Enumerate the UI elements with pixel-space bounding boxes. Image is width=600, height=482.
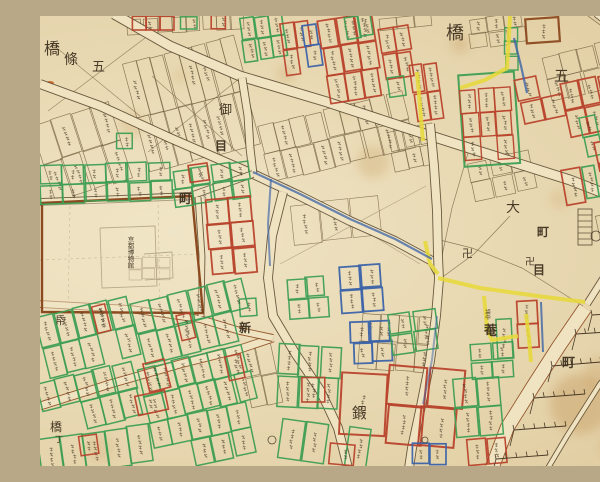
parcel-text-marks bbox=[432, 95, 439, 115]
parcel-text-marks bbox=[240, 435, 247, 450]
parcel-text-marks bbox=[137, 435, 143, 455]
parcel-text-marks bbox=[436, 450, 439, 459]
district-label: 帋 bbox=[55, 314, 66, 327]
survey-tick bbox=[526, 452, 527, 457]
district-label: 鍜 bbox=[352, 404, 367, 422]
parcel-text-marks bbox=[512, 16, 517, 26]
parcel-text-marks bbox=[529, 104, 536, 119]
parcel-block bbox=[239, 16, 288, 62]
district-label: 丁 bbox=[55, 435, 63, 444]
parcel bbox=[51, 113, 83, 157]
parcel-text-marks bbox=[259, 20, 265, 35]
parcel bbox=[459, 90, 476, 114]
parcel-block bbox=[317, 16, 384, 104]
parcel-text-marks bbox=[467, 94, 472, 109]
parcel-text-marks bbox=[115, 168, 119, 177]
parcel bbox=[223, 278, 248, 312]
parcel bbox=[358, 341, 378, 370]
parcel-block bbox=[525, 17, 560, 43]
parcel bbox=[289, 115, 311, 147]
parcel-text-marks bbox=[352, 76, 359, 96]
district-label: 五 bbox=[554, 67, 569, 85]
walled-block bbox=[42, 196, 203, 313]
parcel-text-marks bbox=[419, 450, 423, 459]
parcel bbox=[492, 174, 516, 197]
parcel-text-marks bbox=[93, 169, 97, 178]
parcel-text-marks bbox=[217, 230, 222, 245]
parcel-text-marks bbox=[69, 347, 78, 367]
parcel-text-marks bbox=[74, 164, 84, 184]
parcel bbox=[289, 299, 310, 319]
parcel bbox=[477, 377, 501, 407]
parcel-text-marks bbox=[428, 67, 435, 87]
parcel-text-marks bbox=[312, 50, 317, 60]
parcel bbox=[317, 19, 338, 49]
parcel-text-marks bbox=[288, 429, 295, 449]
map-canvas: 橋條五橋五御目町大町卍卍目菴町鍜新帋橋丁京都博物館袋中 bbox=[40, 16, 600, 466]
parcel bbox=[413, 16, 432, 27]
district-label: 袋中 bbox=[484, 308, 491, 322]
parcel-text-marks bbox=[381, 347, 385, 356]
parcel-text-marks bbox=[219, 255, 224, 270]
district-label: 橋 bbox=[44, 39, 60, 58]
parcel-text-marks bbox=[316, 302, 321, 312]
district-label: 御 bbox=[219, 103, 232, 118]
road-bed bbox=[268, 192, 348, 466]
parcel-text-marks bbox=[223, 381, 232, 401]
parcel-text-marks bbox=[476, 21, 481, 31]
survey-step-line bbox=[592, 312, 600, 315]
parcel-text-marks bbox=[350, 294, 355, 309]
survey-step-drop bbox=[588, 315, 592, 331]
parcel bbox=[489, 31, 509, 47]
parcel-text-marks bbox=[169, 394, 178, 414]
parcel-text-marks bbox=[125, 137, 129, 146]
parcel-text-marks bbox=[306, 383, 311, 403]
parcel-text-marks bbox=[360, 348, 365, 357]
parcel bbox=[454, 407, 479, 438]
parcel-text-marks bbox=[271, 157, 280, 177]
parcel-text-marks bbox=[89, 403, 98, 423]
parcel-text-marks bbox=[221, 439, 228, 454]
survey-line bbox=[588, 16, 600, 54]
parcel bbox=[156, 327, 182, 361]
parcel bbox=[350, 322, 369, 343]
parcel bbox=[211, 16, 225, 29]
parcel-text-marks bbox=[302, 214, 308, 234]
parcel-text-marks bbox=[219, 169, 224, 179]
blue-route bbox=[514, 38, 527, 93]
parcel-text-marks bbox=[205, 385, 214, 405]
parcel-block bbox=[211, 16, 225, 29]
parcel bbox=[493, 342, 514, 360]
survey-tick bbox=[543, 392, 544, 397]
paper-stain bbox=[86, 434, 114, 462]
parcel-text-marks bbox=[502, 115, 507, 130]
parcel bbox=[471, 178, 494, 201]
parcel-text-marks bbox=[221, 187, 226, 197]
parcel bbox=[149, 55, 176, 112]
parcel bbox=[79, 334, 105, 368]
parcel-text-marks bbox=[146, 338, 155, 358]
parcel bbox=[281, 147, 304, 179]
parcel-text-marks bbox=[87, 342, 96, 362]
district-label: 町 bbox=[562, 356, 575, 371]
parcel-block bbox=[409, 62, 444, 122]
parcel-text-marks bbox=[396, 81, 401, 91]
parcel-text-marks bbox=[500, 347, 504, 357]
parcel-text-marks bbox=[243, 253, 248, 268]
parcel-text-marks bbox=[348, 48, 355, 68]
parcel bbox=[584, 134, 600, 157]
survey-tick bbox=[591, 310, 592, 315]
survey-tick bbox=[594, 328, 595, 333]
district-label: 五 bbox=[92, 60, 105, 75]
parcel bbox=[306, 44, 323, 67]
parcel bbox=[309, 297, 330, 318]
parcel-text-marks bbox=[188, 390, 196, 410]
parcel-text-marks bbox=[70, 444, 77, 464]
parcel-text-marks bbox=[43, 321, 52, 341]
parcel bbox=[40, 165, 62, 184]
parcel-text-marks bbox=[280, 125, 288, 145]
survey-tick bbox=[534, 423, 535, 428]
parcel-block bbox=[149, 402, 256, 466]
parcel bbox=[255, 343, 277, 375]
parcel-text-marks bbox=[439, 418, 445, 438]
parcel-block bbox=[302, 24, 323, 67]
parcel bbox=[302, 422, 329, 464]
parcel-text-marks bbox=[496, 34, 501, 44]
parcel bbox=[43, 345, 68, 379]
parcel-text-marks bbox=[240, 184, 245, 194]
parcel-text-marks bbox=[401, 319, 405, 329]
parcel-text-marks bbox=[196, 418, 203, 433]
parcel-text-marks bbox=[405, 376, 410, 396]
parcel bbox=[61, 165, 84, 185]
parcel-text-marks bbox=[412, 153, 417, 163]
parcel-block bbox=[339, 264, 384, 314]
parcel-text-marks bbox=[384, 34, 391, 49]
parcel bbox=[320, 347, 341, 379]
parcel bbox=[305, 112, 327, 143]
parcel-block bbox=[276, 343, 341, 409]
parcel-text-marks bbox=[188, 65, 197, 85]
parcel-text-marks bbox=[50, 351, 58, 371]
parcel-text-marks bbox=[370, 269, 375, 284]
parcel-block bbox=[344, 16, 373, 39]
parcel bbox=[61, 152, 92, 196]
survey-tick bbox=[544, 423, 545, 428]
parcel-text-marks bbox=[288, 153, 296, 173]
parcel-text-marks bbox=[503, 139, 508, 154]
parcel-text-marks bbox=[62, 126, 72, 146]
parcel-text-marks bbox=[370, 73, 377, 93]
parcel-text-marks bbox=[500, 92, 505, 107]
parcel-text-marks bbox=[203, 324, 211, 344]
parcel bbox=[540, 94, 565, 120]
survey-tick bbox=[537, 451, 538, 456]
parcel bbox=[595, 212, 600, 247]
paper-stain bbox=[357, 146, 389, 178]
survey-tick bbox=[555, 422, 556, 427]
parcel-text-marks bbox=[214, 289, 223, 309]
parcel bbox=[40, 121, 62, 165]
parcel-text-marks bbox=[469, 118, 474, 133]
parcel bbox=[297, 144, 320, 175]
parcel-text-marks bbox=[541, 24, 546, 39]
parcel bbox=[462, 113, 480, 138]
parcel-text-marks bbox=[216, 116, 225, 136]
survey-tick bbox=[547, 450, 548, 455]
parcel-text-marks bbox=[501, 364, 505, 374]
parcel bbox=[423, 63, 440, 92]
parcel-text-marks bbox=[240, 376, 249, 396]
parcel bbox=[149, 162, 171, 181]
parcel-text-marks bbox=[192, 19, 196, 28]
parcel-text-marks bbox=[71, 170, 75, 180]
parcel-text-marks bbox=[151, 399, 160, 419]
parcel bbox=[354, 343, 373, 364]
parcel-text-marks bbox=[320, 145, 329, 165]
parcel-text-marks bbox=[478, 166, 484, 176]
parcel-text-marks bbox=[180, 174, 186, 184]
parcel-text-marks bbox=[494, 19, 499, 29]
parcel-text-marks bbox=[235, 409, 242, 424]
parcel-text-marks bbox=[246, 22, 251, 37]
parcel-text-marks bbox=[80, 312, 89, 332]
parcel-text-marks bbox=[325, 23, 332, 43]
parcel-text-marks bbox=[315, 282, 320, 292]
parcel-text-marks bbox=[399, 32, 405, 47]
survey-tick bbox=[523, 424, 524, 429]
parcel-text-marks bbox=[475, 444, 480, 459]
parcel bbox=[467, 438, 488, 466]
parcel-text-marks bbox=[165, 333, 174, 353]
parcel bbox=[203, 16, 217, 29]
parcel bbox=[314, 139, 336, 171]
parcel-text-marks bbox=[198, 168, 203, 178]
parcel-block bbox=[350, 321, 393, 364]
parcel-block bbox=[205, 196, 258, 276]
parcel bbox=[126, 162, 147, 181]
parcel-text-marks bbox=[442, 379, 448, 399]
parcel bbox=[262, 373, 283, 405]
parcel-text-marks bbox=[108, 399, 117, 419]
parcel-text-marks bbox=[124, 333, 133, 353]
parcel-text-marks bbox=[240, 228, 246, 243]
parcel-text-marks bbox=[147, 134, 156, 154]
parcel-text-marks bbox=[488, 410, 494, 430]
parcel-block bbox=[278, 417, 371, 466]
parcel-text-marks bbox=[202, 443, 209, 458]
parcel bbox=[136, 57, 164, 114]
parcel-text-marks bbox=[328, 353, 333, 373]
parcel-text-marks bbox=[132, 80, 141, 100]
parcel-text-marks bbox=[485, 382, 490, 402]
parcel-text-marks bbox=[215, 414, 222, 429]
parcel-text-marks bbox=[465, 412, 471, 432]
parcel-text-marks bbox=[114, 151, 124, 171]
survey-line bbox=[442, 153, 468, 256]
survey-step-line bbox=[576, 331, 600, 334]
district-label: 菴 bbox=[483, 323, 498, 339]
district-label: 目 bbox=[215, 139, 227, 153]
parcel bbox=[71, 108, 102, 152]
parcel-block bbox=[452, 375, 504, 438]
parcel bbox=[214, 376, 237, 407]
parcel-text-marks bbox=[388, 59, 394, 74]
parcel bbox=[494, 87, 512, 112]
parcel-text-marks bbox=[276, 40, 281, 55]
parcel-text-marks bbox=[295, 284, 300, 294]
survey-tick bbox=[516, 452, 517, 457]
district-label: 町 bbox=[179, 192, 192, 207]
parcel bbox=[491, 360, 513, 378]
parcel-text-marks bbox=[329, 51, 337, 71]
parcel-text-marks bbox=[357, 439, 364, 459]
district-label: 目 bbox=[533, 263, 545, 277]
parcel-text-marks bbox=[177, 422, 184, 437]
parcel bbox=[278, 419, 306, 461]
parcel-text-marks bbox=[115, 438, 122, 458]
parcel bbox=[470, 343, 492, 361]
district-label: 大 bbox=[506, 200, 520, 216]
map-circle-symbol bbox=[422, 437, 428, 443]
district-label: 橋 bbox=[50, 420, 62, 434]
parcel-text-marks bbox=[48, 171, 52, 181]
road-bed bbox=[114, 16, 600, 208]
parcel bbox=[594, 39, 600, 65]
parcel-text-marks bbox=[215, 204, 220, 219]
district-label: 新 bbox=[239, 320, 251, 335]
parcel-text-marks bbox=[137, 168, 141, 178]
parcel-text-marks bbox=[400, 415, 406, 435]
parcel-text-marks bbox=[503, 181, 508, 191]
historical-map: 橋條五橋五御目町大町卍卍目菴町鍜新帋橋丁京都博物館袋中 bbox=[40, 16, 600, 466]
parcel-text-marks bbox=[274, 18, 279, 33]
yellow-route bbox=[526, 314, 531, 362]
parcel-text-marks bbox=[101, 113, 111, 133]
survey-tick bbox=[580, 359, 581, 364]
district-label: 京都博物館 bbox=[126, 235, 134, 270]
parcel-text-marks bbox=[336, 141, 345, 161]
parcel bbox=[358, 41, 380, 70]
parcel-text-marks bbox=[311, 432, 318, 452]
parcel-text-marks bbox=[334, 78, 341, 98]
parcel-text-marks bbox=[403, 57, 409, 72]
parcel-block bbox=[470, 342, 515, 380]
yellow-route bbox=[438, 278, 585, 302]
parcel-text-marks bbox=[238, 202, 243, 217]
parcel-text-marks bbox=[188, 123, 197, 143]
parcel-text-marks bbox=[262, 42, 268, 57]
survey-tick bbox=[585, 328, 586, 333]
parcel-text-marks bbox=[480, 365, 484, 375]
parcel-text-marks bbox=[371, 292, 376, 307]
parcel bbox=[427, 368, 465, 409]
parcel-text-marks bbox=[348, 271, 352, 286]
parcel bbox=[361, 287, 384, 311]
district-label: 橋 bbox=[446, 23, 464, 44]
parcel bbox=[340, 289, 363, 313]
parcel bbox=[521, 99, 546, 124]
parcel-text-marks bbox=[522, 177, 528, 187]
district-label: 條 bbox=[64, 52, 78, 68]
map-circle-symbol bbox=[268, 436, 276, 444]
parcel bbox=[226, 402, 250, 431]
road-layer bbox=[40, 16, 600, 466]
survey-line bbox=[444, 216, 510, 276]
parcel-block bbox=[579, 115, 600, 157]
parcel-text-marks bbox=[297, 304, 301, 314]
parcel-text-marks bbox=[365, 45, 372, 65]
parcel-text-marks bbox=[285, 381, 290, 401]
parcel bbox=[328, 135, 350, 167]
parcel-block bbox=[287, 276, 329, 320]
parcel-text-marks bbox=[157, 426, 163, 441]
survey-step-line bbox=[514, 426, 566, 430]
parcel bbox=[391, 150, 409, 172]
district-label: 卍 bbox=[462, 247, 473, 260]
parcel-text-marks bbox=[478, 349, 482, 359]
blue-route bbox=[541, 302, 543, 352]
parcel-text-marks bbox=[484, 93, 489, 108]
parcel bbox=[525, 17, 560, 43]
district-label: 町 bbox=[537, 225, 549, 239]
yellow-route bbox=[460, 16, 510, 88]
